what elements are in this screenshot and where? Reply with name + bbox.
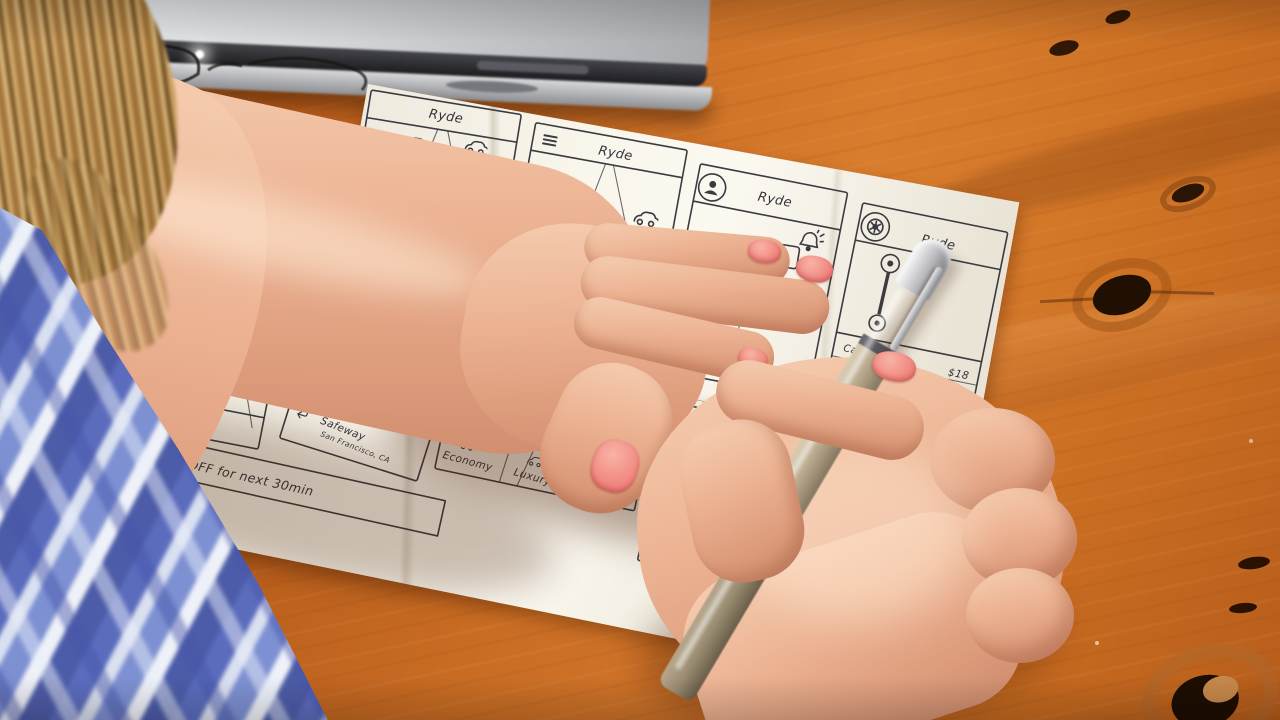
knuckle [966, 568, 1074, 663]
hamburger-menu-icon [543, 135, 557, 145]
large-knot [1037, 239, 1215, 348]
corner-knot [1139, 638, 1280, 720]
wireframe-title: Ryde [756, 190, 793, 211]
knot [1104, 7, 1132, 26]
settings-gear-icon [866, 218, 884, 236]
knot [1048, 37, 1081, 58]
knot [1237, 555, 1270, 571]
wireframe-title: Ryde [597, 143, 634, 164]
knot [1229, 602, 1258, 615]
notification-bell-icon [799, 227, 826, 253]
profile-icon [704, 180, 720, 196]
photo-scene: Ryde luxury sedan 2 min away Ryde [0, 0, 1280, 720]
wireframe-title: Ryde [428, 107, 465, 127]
